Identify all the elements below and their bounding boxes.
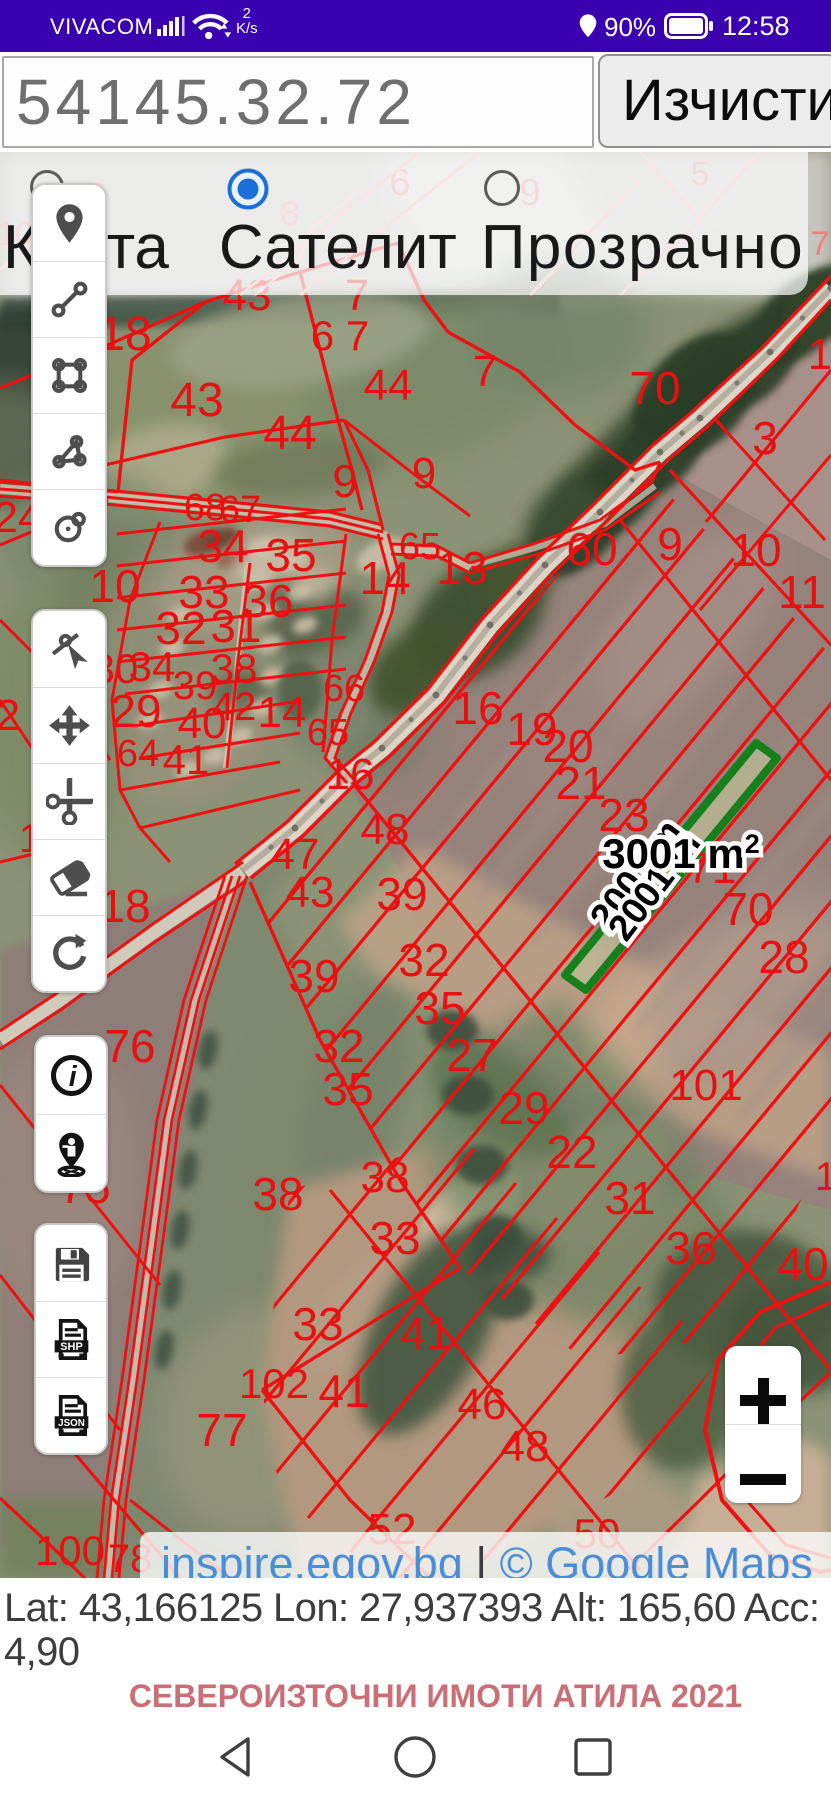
svg-text:35: 35: [265, 529, 316, 581]
svg-text:3: 3: [752, 412, 778, 464]
svg-text:7: 7: [473, 347, 497, 396]
svg-text:10: 10: [730, 524, 781, 576]
svg-text:i: i: [68, 1061, 77, 1093]
svg-text:29: 29: [110, 685, 161, 737]
svg-text:9: 9: [332, 455, 358, 507]
svg-text:9: 9: [657, 518, 683, 570]
svg-text:39: 39: [288, 950, 339, 1002]
svg-text:28: 28: [758, 931, 809, 983]
svg-text:43: 43: [170, 374, 223, 427]
svg-text:33: 33: [292, 1298, 343, 1350]
svg-text:41: 41: [163, 736, 210, 783]
svg-text:101: 101: [669, 1061, 742, 1110]
svg-text:66: 66: [323, 668, 365, 710]
svg-text:16: 16: [326, 750, 375, 799]
svg-text:102: 102: [239, 1360, 309, 1407]
svg-text:27: 27: [446, 1029, 497, 1081]
svg-text:1: 1: [808, 330, 831, 379]
svg-text:36: 36: [665, 1222, 716, 1274]
svg-text:39: 39: [376, 868, 427, 920]
svg-text:3001 m2: 3001 m2: [602, 829, 759, 877]
svg-text:1: 1: [815, 1155, 831, 1199]
svg-text:100: 100: [35, 1527, 105, 1574]
svg-text:13: 13: [436, 542, 487, 594]
svg-text:34: 34: [129, 643, 176, 690]
svg-text:41: 41: [318, 1365, 369, 1417]
svg-text:29: 29: [498, 1082, 549, 1134]
svg-text:76: 76: [104, 1020, 155, 1072]
svg-text:9: 9: [412, 449, 436, 498]
svg-text:22: 22: [546, 1126, 597, 1178]
svg-text:65: 65: [399, 526, 441, 568]
svg-text:32: 32: [398, 934, 449, 986]
svg-text:14: 14: [258, 688, 307, 737]
svg-text:JSON: JSON: [58, 1418, 85, 1429]
svg-text:16: 16: [452, 682, 503, 734]
svg-text:SHP: SHP: [60, 1341, 83, 1353]
svg-text:48: 48: [501, 1422, 550, 1471]
svg-text:77: 77: [196, 1404, 247, 1456]
svg-text:2: 2: [0, 691, 20, 740]
svg-text:33: 33: [369, 1212, 420, 1264]
svg-text:65: 65: [307, 712, 349, 754]
svg-text:41: 41: [400, 1307, 451, 1359]
svg-text:70: 70: [629, 362, 680, 414]
svg-text:18: 18: [99, 880, 150, 932]
svg-text:46: 46: [458, 1380, 507, 1429]
svg-text:67: 67: [219, 489, 261, 531]
svg-text:11: 11: [778, 566, 826, 618]
svg-text:35: 35: [322, 1063, 373, 1115]
svg-text:35: 35: [414, 982, 465, 1034]
svg-text:38: 38: [252, 1168, 303, 1220]
svg-text:64: 64: [117, 733, 159, 775]
svg-text:10: 10: [89, 560, 140, 612]
svg-text:7: 7: [811, 225, 830, 263]
svg-text:60: 60: [566, 523, 617, 575]
svg-text:40: 40: [777, 1238, 828, 1290]
svg-text:43: 43: [286, 868, 335, 917]
svg-text:48: 48: [361, 805, 410, 854]
svg-text:31: 31: [604, 1172, 655, 1224]
svg-text:44: 44: [364, 361, 413, 410]
svg-text:70: 70: [722, 883, 773, 935]
svg-text:38: 38: [361, 1153, 410, 1202]
svg-text:44: 44: [263, 407, 316, 460]
